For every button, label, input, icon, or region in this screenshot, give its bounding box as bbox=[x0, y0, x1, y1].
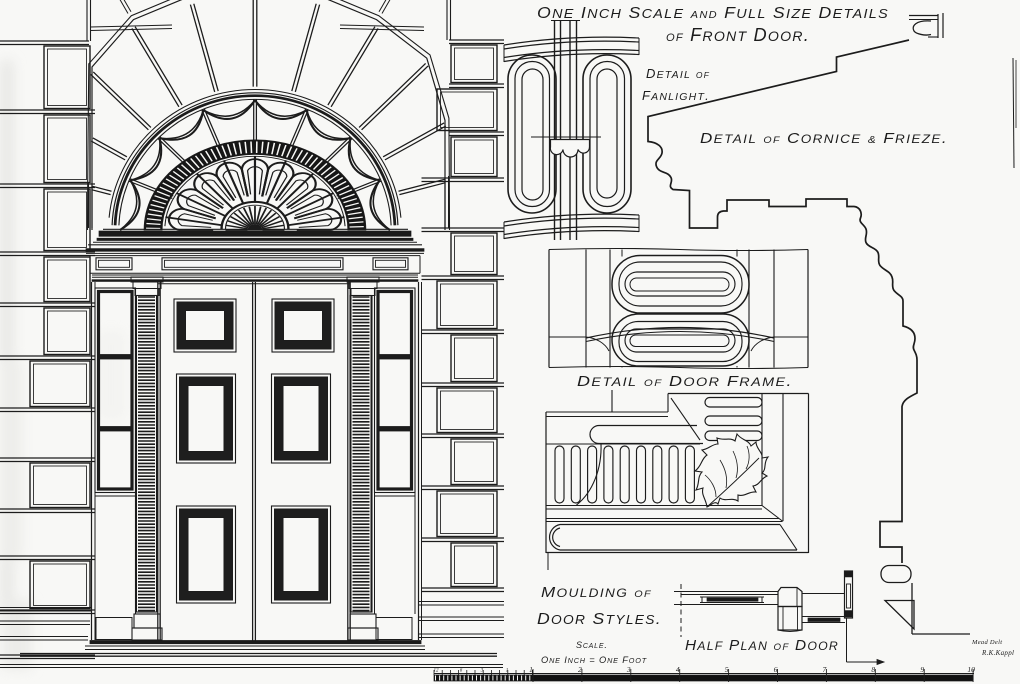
svg-text:3: 3 bbox=[626, 665, 631, 674]
svg-text:10: 10 bbox=[967, 665, 975, 674]
svg-text:OF FRONT DOOR.: OF FRONT DOOR. bbox=[666, 25, 810, 45]
svg-text:2: 2 bbox=[578, 665, 582, 674]
svg-text:R.K.Kappl: R.K.Kappl bbox=[981, 649, 1014, 657]
svg-text:6: 6 bbox=[774, 665, 778, 674]
svg-text:9: 9 bbox=[920, 665, 924, 674]
svg-text:8: 8 bbox=[871, 665, 875, 674]
svg-text:5: 5 bbox=[725, 665, 729, 674]
svg-text:Mead Delt: Mead Delt bbox=[971, 639, 1002, 646]
svg-text:12: 12 bbox=[434, 669, 440, 674]
svg-text:DOOR STYLES.: DOOR STYLES. bbox=[537, 611, 662, 628]
svg-text:DETAIL OF CORNICE & FRIEZE.: DETAIL OF CORNICE & FRIEZE. bbox=[700, 131, 948, 147]
svg-text:FANLIGHT.: FANLIGHT. bbox=[642, 88, 710, 103]
svg-text:7: 7 bbox=[823, 665, 827, 674]
svg-text:DETAIL OF DOOR FRAME.: DETAIL OF DOOR FRAME. bbox=[577, 373, 793, 390]
svg-text:4: 4 bbox=[676, 665, 680, 674]
svg-text:1: 1 bbox=[529, 665, 533, 674]
svg-text:1: 1 bbox=[506, 669, 509, 674]
svg-text:HALF PLAN OF DOOR: HALF PLAN OF DOOR bbox=[685, 637, 839, 654]
